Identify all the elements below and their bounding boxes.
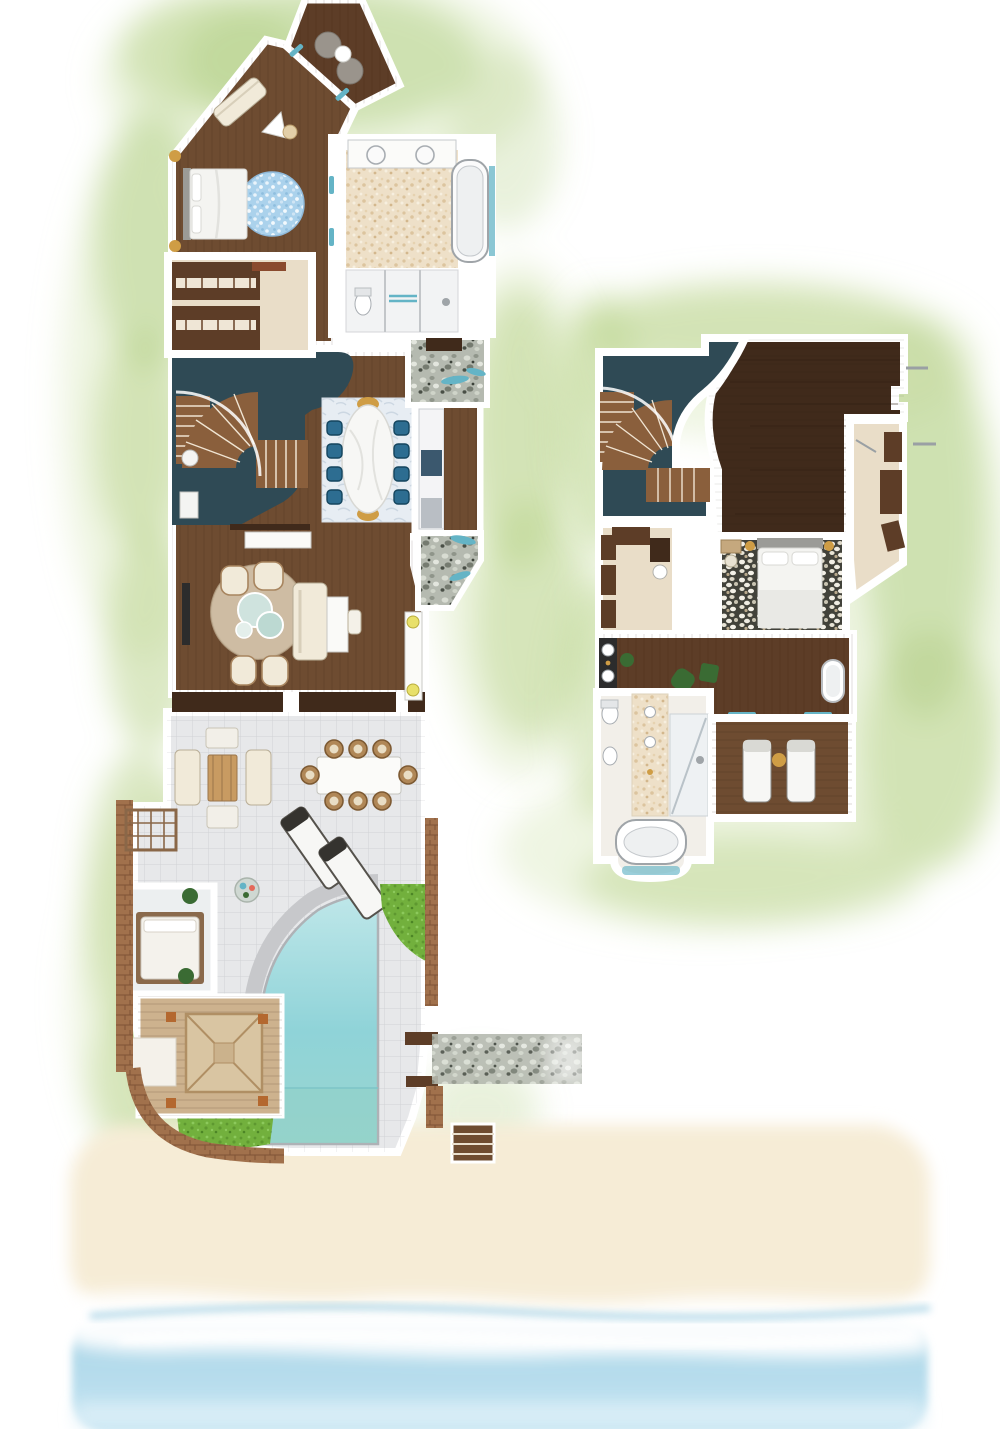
sink — [645, 737, 656, 748]
lamp — [407, 684, 419, 696]
fridge — [421, 498, 442, 528]
deck-armchair — [175, 750, 200, 805]
upper-balcony — [712, 718, 852, 818]
outdoor-dining-table — [317, 757, 401, 794]
angled-dressing-room — [850, 420, 905, 597]
round-table — [772, 753, 786, 767]
sink — [416, 146, 434, 164]
walk-in-wardrobe — [599, 524, 676, 648]
deck-armchair — [246, 750, 271, 805]
basin — [602, 644, 614, 656]
writing-desk — [721, 540, 741, 553]
stove — [421, 450, 442, 476]
potted-plant — [178, 968, 194, 984]
desk-chair — [348, 610, 361, 634]
window — [622, 866, 680, 875]
green-ottoman — [699, 663, 720, 684]
bedside-lamp — [745, 541, 755, 551]
wood-shelf — [230, 524, 310, 530]
kitchen — [415, 403, 480, 537]
beach — [70, 1125, 930, 1429]
hall-cabinet — [180, 492, 198, 518]
double-vanity — [348, 140, 456, 168]
sink — [367, 146, 385, 164]
bedside-lamp — [824, 541, 834, 551]
potted-plant — [620, 653, 634, 667]
sofa — [293, 583, 327, 660]
round-mirror — [653, 565, 667, 579]
shower-head — [696, 756, 704, 764]
upper-bedroom — [718, 536, 846, 638]
beach-pavilion — [132, 996, 282, 1116]
jar — [182, 450, 198, 466]
window — [489, 166, 495, 256]
pebble-entry-path — [408, 337, 487, 405]
entry-bench — [426, 338, 462, 351]
stool — [725, 555, 737, 567]
bench — [252, 262, 286, 271]
bidet — [603, 747, 617, 765]
basin — [602, 670, 614, 682]
nesting-table — [236, 622, 252, 638]
dining-room — [322, 397, 414, 522]
console-table — [327, 597, 348, 652]
villa-floor-plan-page — [0, 0, 1000, 1429]
stepping-stone-path — [432, 1034, 588, 1084]
side-table — [335, 46, 351, 62]
deck-wall — [172, 692, 425, 712]
upper-bathroom — [597, 692, 710, 878]
wardrobe — [884, 432, 902, 462]
round-blue-rug — [240, 172, 304, 236]
nesting-table — [257, 612, 283, 638]
media-sideboard — [182, 583, 190, 645]
master-bathroom — [329, 138, 495, 334]
walk-in-closet — [168, 256, 312, 354]
potted-plant — [182, 888, 198, 904]
bedside-lamp — [169, 240, 181, 252]
villa-floor-plan-illustration — [0, 0, 1000, 1429]
bedside-lamp — [169, 150, 181, 162]
wardrobe — [880, 470, 902, 514]
lamp — [407, 616, 419, 628]
shower-head — [442, 298, 450, 306]
sideboard — [245, 532, 311, 548]
flower-pot — [235, 878, 259, 902]
dining-table — [342, 405, 394, 513]
sink — [645, 707, 656, 718]
stool — [283, 125, 297, 139]
headboard — [757, 538, 823, 549]
surf-foam — [70, 1292, 930, 1358]
